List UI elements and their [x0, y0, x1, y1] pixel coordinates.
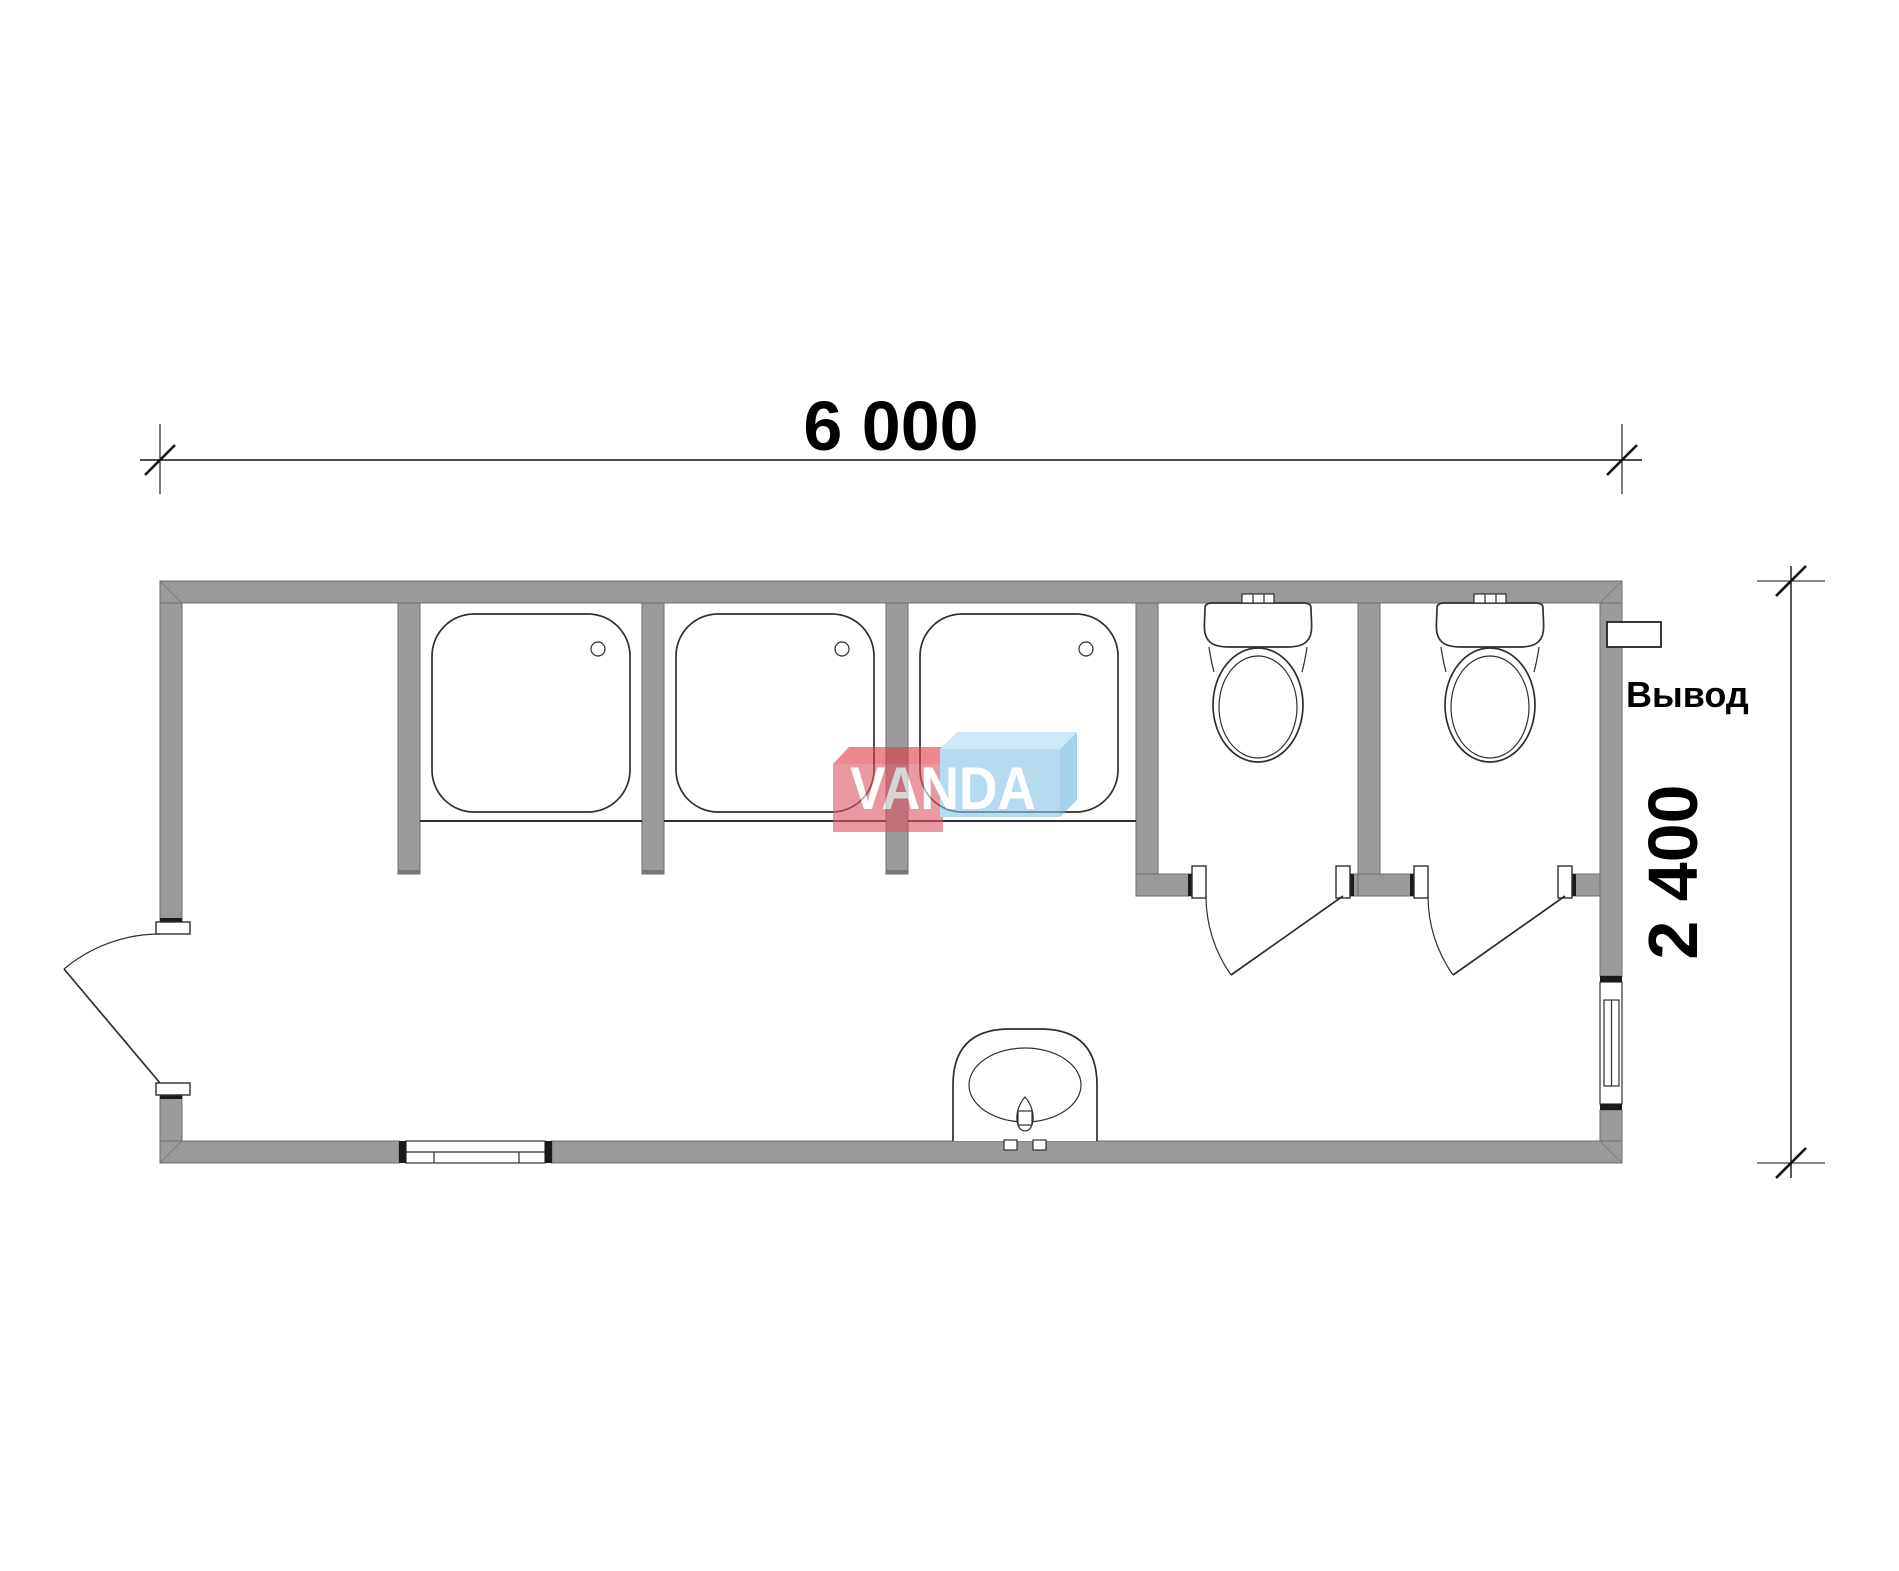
utility-outlet: Вывод: [1607, 622, 1749, 715]
width-dimension-label: 6 000: [803, 387, 978, 465]
flush-plate-icon: [1242, 594, 1274, 603]
outlet-label: Вывод: [1626, 674, 1749, 715]
wc2-front-wall-right: [1572, 874, 1600, 896]
door-jamb: [1336, 866, 1350, 898]
washbasin: [953, 1029, 1097, 1150]
left-wall-upper: [160, 603, 182, 922]
wc1-door: [1192, 866, 1350, 975]
toilet-bowl-icon: [1445, 648, 1535, 762]
shower-tray-icon: [432, 614, 630, 812]
toilet-wc2: [1436, 594, 1543, 762]
door-leaf-line: [1231, 896, 1343, 975]
door-jamb: [1414, 866, 1428, 898]
entrance-door: [64, 922, 190, 1095]
toilet-wc1: [1204, 594, 1311, 762]
window-end-cap: [545, 1141, 552, 1163]
partition-end-cap: [642, 870, 664, 874]
partition-shower2-shower3: [886, 603, 908, 874]
wc2-door: [1414, 866, 1572, 975]
right-wall-lower: [1600, 1110, 1622, 1141]
door-swing-arc: [64, 934, 160, 969]
wc1-front-wall-left: [1136, 874, 1192, 896]
washbasin-mount-notch: [1004, 1140, 1017, 1150]
height-dimension-label: 2 400: [1634, 784, 1712, 959]
flush-plate-icon: [1474, 594, 1506, 603]
watermark-blue-top-face: [940, 732, 1077, 749]
partition-entry-shower1: [398, 603, 420, 874]
floor-plan-canvas: 6 000 2 400: [0, 0, 1899, 1571]
watermark-text: VANDA: [850, 755, 1036, 822]
outlet-stub-icon: [1607, 622, 1661, 647]
door-jamb: [1192, 866, 1206, 898]
window-end-cap: [399, 1141, 406, 1163]
toilet-bowl-icon: [1213, 648, 1303, 762]
door-swing-arc: [1206, 896, 1231, 975]
top-dimension: 6 000: [140, 387, 1642, 494]
door-swing-arc: [1428, 896, 1453, 975]
right-wall-upper: [1600, 603, 1622, 976]
partition-end-cap: [886, 870, 908, 874]
floor-plan-page: 6 000 2 400: [0, 0, 1899, 1571]
door-jamb: [156, 922, 190, 934]
right-window: [1600, 976, 1622, 1110]
wall-end-caps: [160, 870, 1576, 1099]
washbasin-mount-notch: [1033, 1140, 1046, 1150]
door-leaf-line: [64, 969, 160, 1083]
wc2-front-wall-left: [1358, 874, 1414, 896]
partition-end-cap: [398, 870, 420, 874]
partition-shower3-wc1: [1136, 603, 1158, 874]
partition-wc1-wc2: [1358, 603, 1380, 874]
window-end-cap: [1600, 976, 1622, 982]
partition-shower1-shower2: [642, 603, 664, 874]
toilet-tank-icon: [1436, 603, 1543, 647]
door-jamb: [156, 1083, 190, 1095]
bottom-wall-right: [552, 1141, 1622, 1163]
right-dimension: 2 400: [1634, 566, 1825, 1178]
vanda-watermark: VANDA: [833, 732, 1077, 832]
top-wall: [160, 581, 1622, 603]
bottom-window: [399, 1141, 552, 1163]
faucet-base-icon: [1018, 1111, 1032, 1125]
door-jamb: [1558, 866, 1572, 898]
left-wall-lower: [160, 1095, 182, 1141]
door-leaf-line: [1453, 896, 1565, 975]
bottom-wall-left: [160, 1141, 399, 1163]
toilet-tank-icon: [1204, 603, 1311, 647]
window-end-cap: [1600, 1104, 1622, 1110]
